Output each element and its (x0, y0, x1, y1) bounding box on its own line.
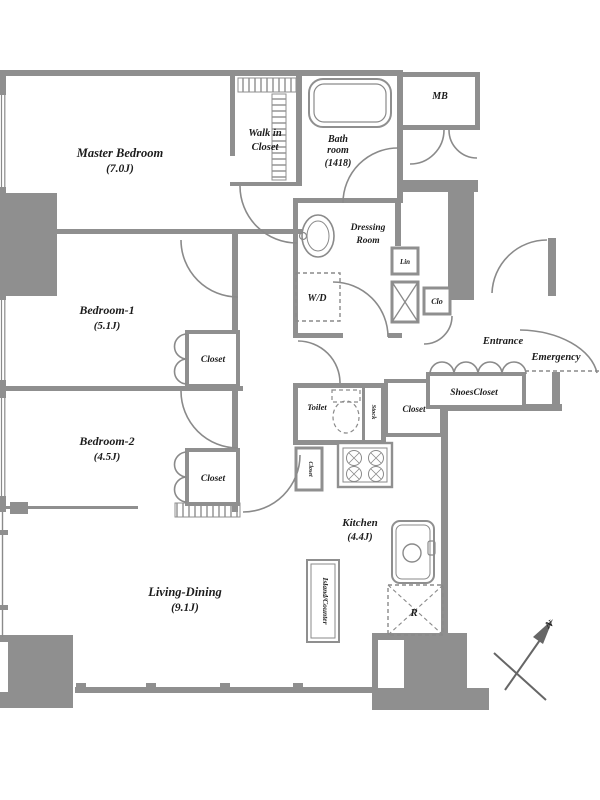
pillar (448, 188, 474, 300)
room-size-living-dining: (9.1J) (171, 602, 199, 614)
wall (293, 198, 403, 203)
wall (293, 383, 298, 445)
room-label-walk-in-closet-1: Walk in (248, 128, 282, 139)
floor-plan-drawing: Master Bedroom (7.0J) Walk in Closet Bat… (0, 0, 600, 800)
room-label-walk-in-closet-2: Closet (252, 142, 280, 153)
room-label-living-dining: Living-Dining (147, 585, 222, 599)
faucet-icon (300, 233, 307, 240)
balcony-post (220, 683, 230, 693)
room-label-entrance: Entrance (482, 336, 524, 347)
wall (232, 391, 238, 453)
label-closet-bedroom2: Closet (201, 474, 226, 484)
wall (400, 125, 480, 130)
wall (10, 502, 28, 514)
balcony-post (293, 683, 303, 693)
room-label-dressing-2: Room (355, 236, 379, 246)
north-arrow-icon (494, 619, 553, 700)
toilet-icon (332, 390, 360, 402)
room-size-bedroom2: (4.5J) (94, 451, 121, 463)
wall (0, 70, 305, 76)
pillar-notch (0, 642, 8, 692)
door-arc-mb-left (410, 130, 444, 164)
room-label-bathroom-1: Bath (327, 134, 348, 145)
wall (362, 386, 365, 442)
wall (441, 408, 448, 637)
label-shoes-closet: ShoesCloset (450, 388, 498, 398)
compass-crossbar (494, 653, 546, 700)
wall (400, 72, 480, 77)
label-closet-small: Closet (307, 461, 313, 477)
label-washer-dryer: W/D (308, 293, 327, 304)
door-arc-dressing (333, 282, 388, 337)
pillar (0, 635, 73, 708)
pillar (0, 193, 57, 296)
room-label-bathroom-3: (1418) (325, 158, 352, 169)
wall (296, 70, 302, 186)
pillar-notch (378, 640, 404, 688)
room-label-dressing-1: Dressing (350, 223, 386, 233)
door-arc-entrance-hall (492, 240, 547, 293)
label-linen: Lin (399, 258, 410, 266)
compass-needle (505, 640, 540, 690)
label-closet-hall: Closet (402, 404, 426, 414)
room-label-bedroom2: Bedroom-2 (78, 434, 134, 448)
room-size-master-bedroom: (7.0J) (106, 163, 134, 175)
label-stock: Stock (370, 405, 377, 421)
stove-icon (338, 443, 392, 487)
door-arc-hall-living (243, 455, 300, 512)
bathtub-icon (309, 79, 391, 127)
room-label-bedroom1: Bedroom-1 (78, 303, 134, 317)
room-size-kitchen: (4.4J) (347, 532, 372, 543)
room-label-toilet: Toilet (307, 402, 327, 412)
door-arc-toilet (298, 341, 340, 383)
wall (475, 72, 480, 130)
window-tick (0, 605, 8, 610)
wall (293, 333, 343, 338)
wall (230, 182, 302, 186)
sink-inner (307, 221, 329, 251)
window-tick (0, 530, 8, 535)
wall (232, 234, 238, 334)
wall (548, 238, 556, 296)
labels: Master Bedroom (7.0J) Walk in Closet Bat… (76, 91, 581, 632)
wall (395, 198, 401, 246)
room-size-bedroom1: (5.1J) (94, 320, 121, 332)
pillar (465, 688, 489, 710)
label-emergency: Emergency (531, 352, 581, 363)
room-label-bathroom-2: room (327, 145, 349, 156)
door-arc-mb-right (449, 130, 477, 158)
toilet-bowl (333, 401, 359, 433)
door-arc-bath (343, 148, 398, 203)
label-island-counter: Island/Counter (321, 576, 330, 624)
floor-plan: Master Bedroom (7.0J) Walk in Closet Bat… (0, 0, 600, 800)
door-arc-master (240, 186, 297, 243)
balcony-post (146, 683, 156, 693)
door-arc-bedroom2 (181, 391, 238, 448)
wall (230, 76, 235, 156)
wic-hanger (238, 78, 296, 92)
label-meter-box: MB (431, 91, 448, 102)
room-label-kitchen: Kitchen (341, 517, 377, 529)
door-arc-bedroom1 (181, 240, 238, 297)
wall (297, 70, 403, 76)
wall (388, 333, 402, 338)
label-closet-bedroom1: Closet (201, 355, 226, 365)
balcony-post (76, 683, 86, 693)
label-clo: Clo (431, 297, 443, 306)
room-label-master-bedroom: Master Bedroom (76, 146, 164, 160)
door-arc-clo (424, 316, 452, 344)
wall (293, 383, 385, 388)
label-refrigerator: R (409, 607, 417, 619)
